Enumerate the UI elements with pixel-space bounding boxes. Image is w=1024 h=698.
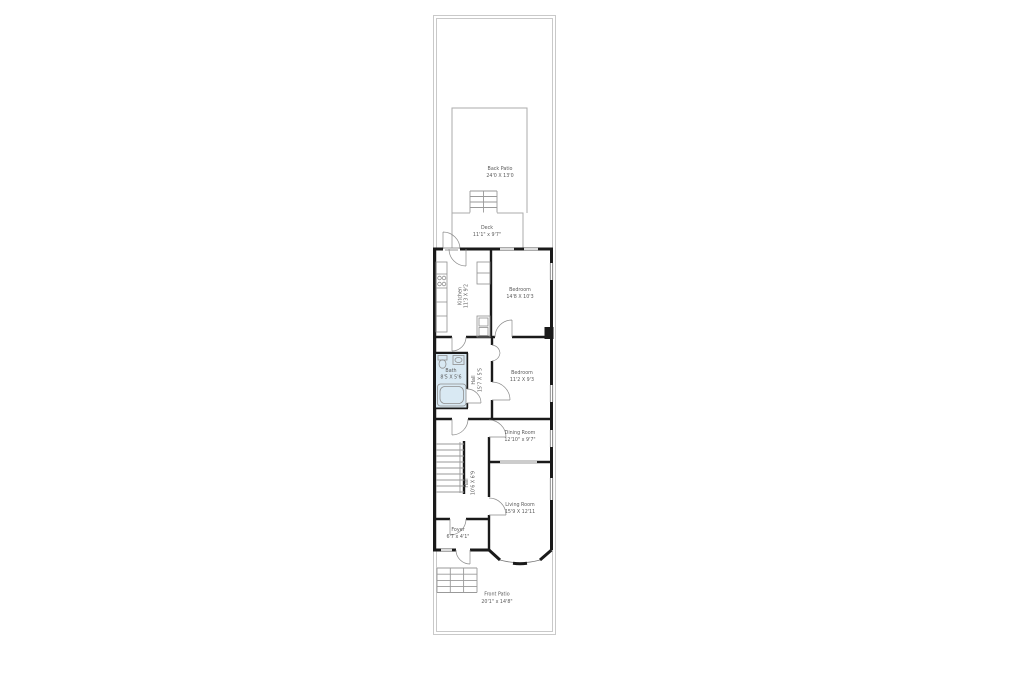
hall-lower-label: Hall [464, 478, 470, 487]
front-patio: Front Patio 20'1" x 14'8" [437, 568, 513, 605]
back-patio-label: Back Patio [488, 166, 513, 172]
foyer-dims: 6'7 x 4'1" [447, 534, 470, 540]
bath-label: Bath [445, 368, 456, 374]
bay-window [489, 550, 552, 564]
hall-upper-label: Hall [471, 375, 477, 384]
back-stairs [470, 191, 497, 213]
window-living [550, 478, 552, 500]
bedroom1-dims: 14'8 X 10'3 [506, 294, 533, 300]
front-stairs [437, 568, 477, 593]
bedroom-2: Bedroom 11'2 X 9'3 [510, 370, 534, 383]
window-bedroom1 [550, 263, 552, 280]
hall-upper: Hall 15'7 X 5'5 [471, 368, 484, 392]
dining-dims: 12'10" x 9'7" [504, 437, 535, 443]
window-top-1 [500, 248, 514, 250]
dining-door [489, 420, 506, 437]
living-label: Living Room [505, 502, 535, 508]
hall-passage-door [452, 419, 468, 435]
bedroom-1: Bedroom 14'8 X 10'3 [506, 287, 533, 300]
window-bedroom2 [550, 385, 552, 402]
living-dims: 15'9 X 12'11 [505, 509, 535, 515]
staircase [436, 442, 464, 493]
back-patio-outline [452, 108, 527, 213]
kitchen-deck-door [449, 249, 466, 266]
bath-floor [436, 354, 467, 408]
front-patio-dims: 20'1" x 14'8" [481, 599, 512, 605]
hall-lower-dims: 10'6 X 6'9 [471, 471, 477, 495]
window-dining [550, 430, 552, 447]
kitchen: Kitchen 11'3 X 9'2 [436, 262, 490, 337]
bedroom2-dims: 11'2 X 9'3 [510, 377, 534, 383]
front-door [456, 550, 470, 564]
living-door [489, 498, 506, 515]
foyer-label: Foyer [451, 527, 464, 533]
kitchen-dims: 11'3 X 9'2 [464, 284, 470, 308]
kitchen-label: Kitchen [458, 287, 464, 305]
hall-upper-dims: 15'7 X 5'5 [478, 368, 484, 392]
dining-label: Dining Room [505, 430, 536, 436]
deck-dims: 11'1" x 9'7" [473, 232, 501, 238]
floor-plan-page: Back Patio 24'0 X 13'0 Deck 11'1" x 9'7" [0, 0, 1024, 698]
kitchen-hall-door [452, 337, 466, 351]
front-patio-label: Front Patio [484, 592, 509, 598]
bedroom1-label: Bedroom [509, 287, 531, 293]
slider-door-top [443, 248, 460, 250]
floor-plan-svg: Back Patio 24'0 X 13'0 Deck 11'1" x 9'7" [0, 0, 1024, 698]
back-patio-dims: 24'0 X 13'0 [486, 173, 513, 179]
window-foyer [441, 549, 452, 551]
bath-dims: 8'5 X 5'6 [440, 375, 461, 381]
hall-lower: Hall 10'6 X 6'9 [464, 471, 477, 495]
bedroom2-label: Bedroom [511, 370, 533, 376]
bedroom2-door [492, 382, 510, 400]
bedroom1-door [495, 320, 512, 337]
closet-bifold-door [492, 345, 500, 361]
window-top-2 [524, 248, 538, 250]
dining-room: Dining Room 12'10" x 9'7" [504, 430, 535, 443]
bay-angled-walls [489, 550, 552, 560]
cased-opening [500, 461, 537, 463]
deck: Deck 11'1" x 9'7" [443, 213, 523, 249]
deck-label: Deck [481, 225, 493, 231]
bath: Bath 8'5 X 5'6 [436, 354, 467, 408]
back-patio: Back Patio 24'0 X 13'0 [452, 108, 527, 213]
living-room: Living Room 15'9 X 12'11 [505, 502, 535, 515]
